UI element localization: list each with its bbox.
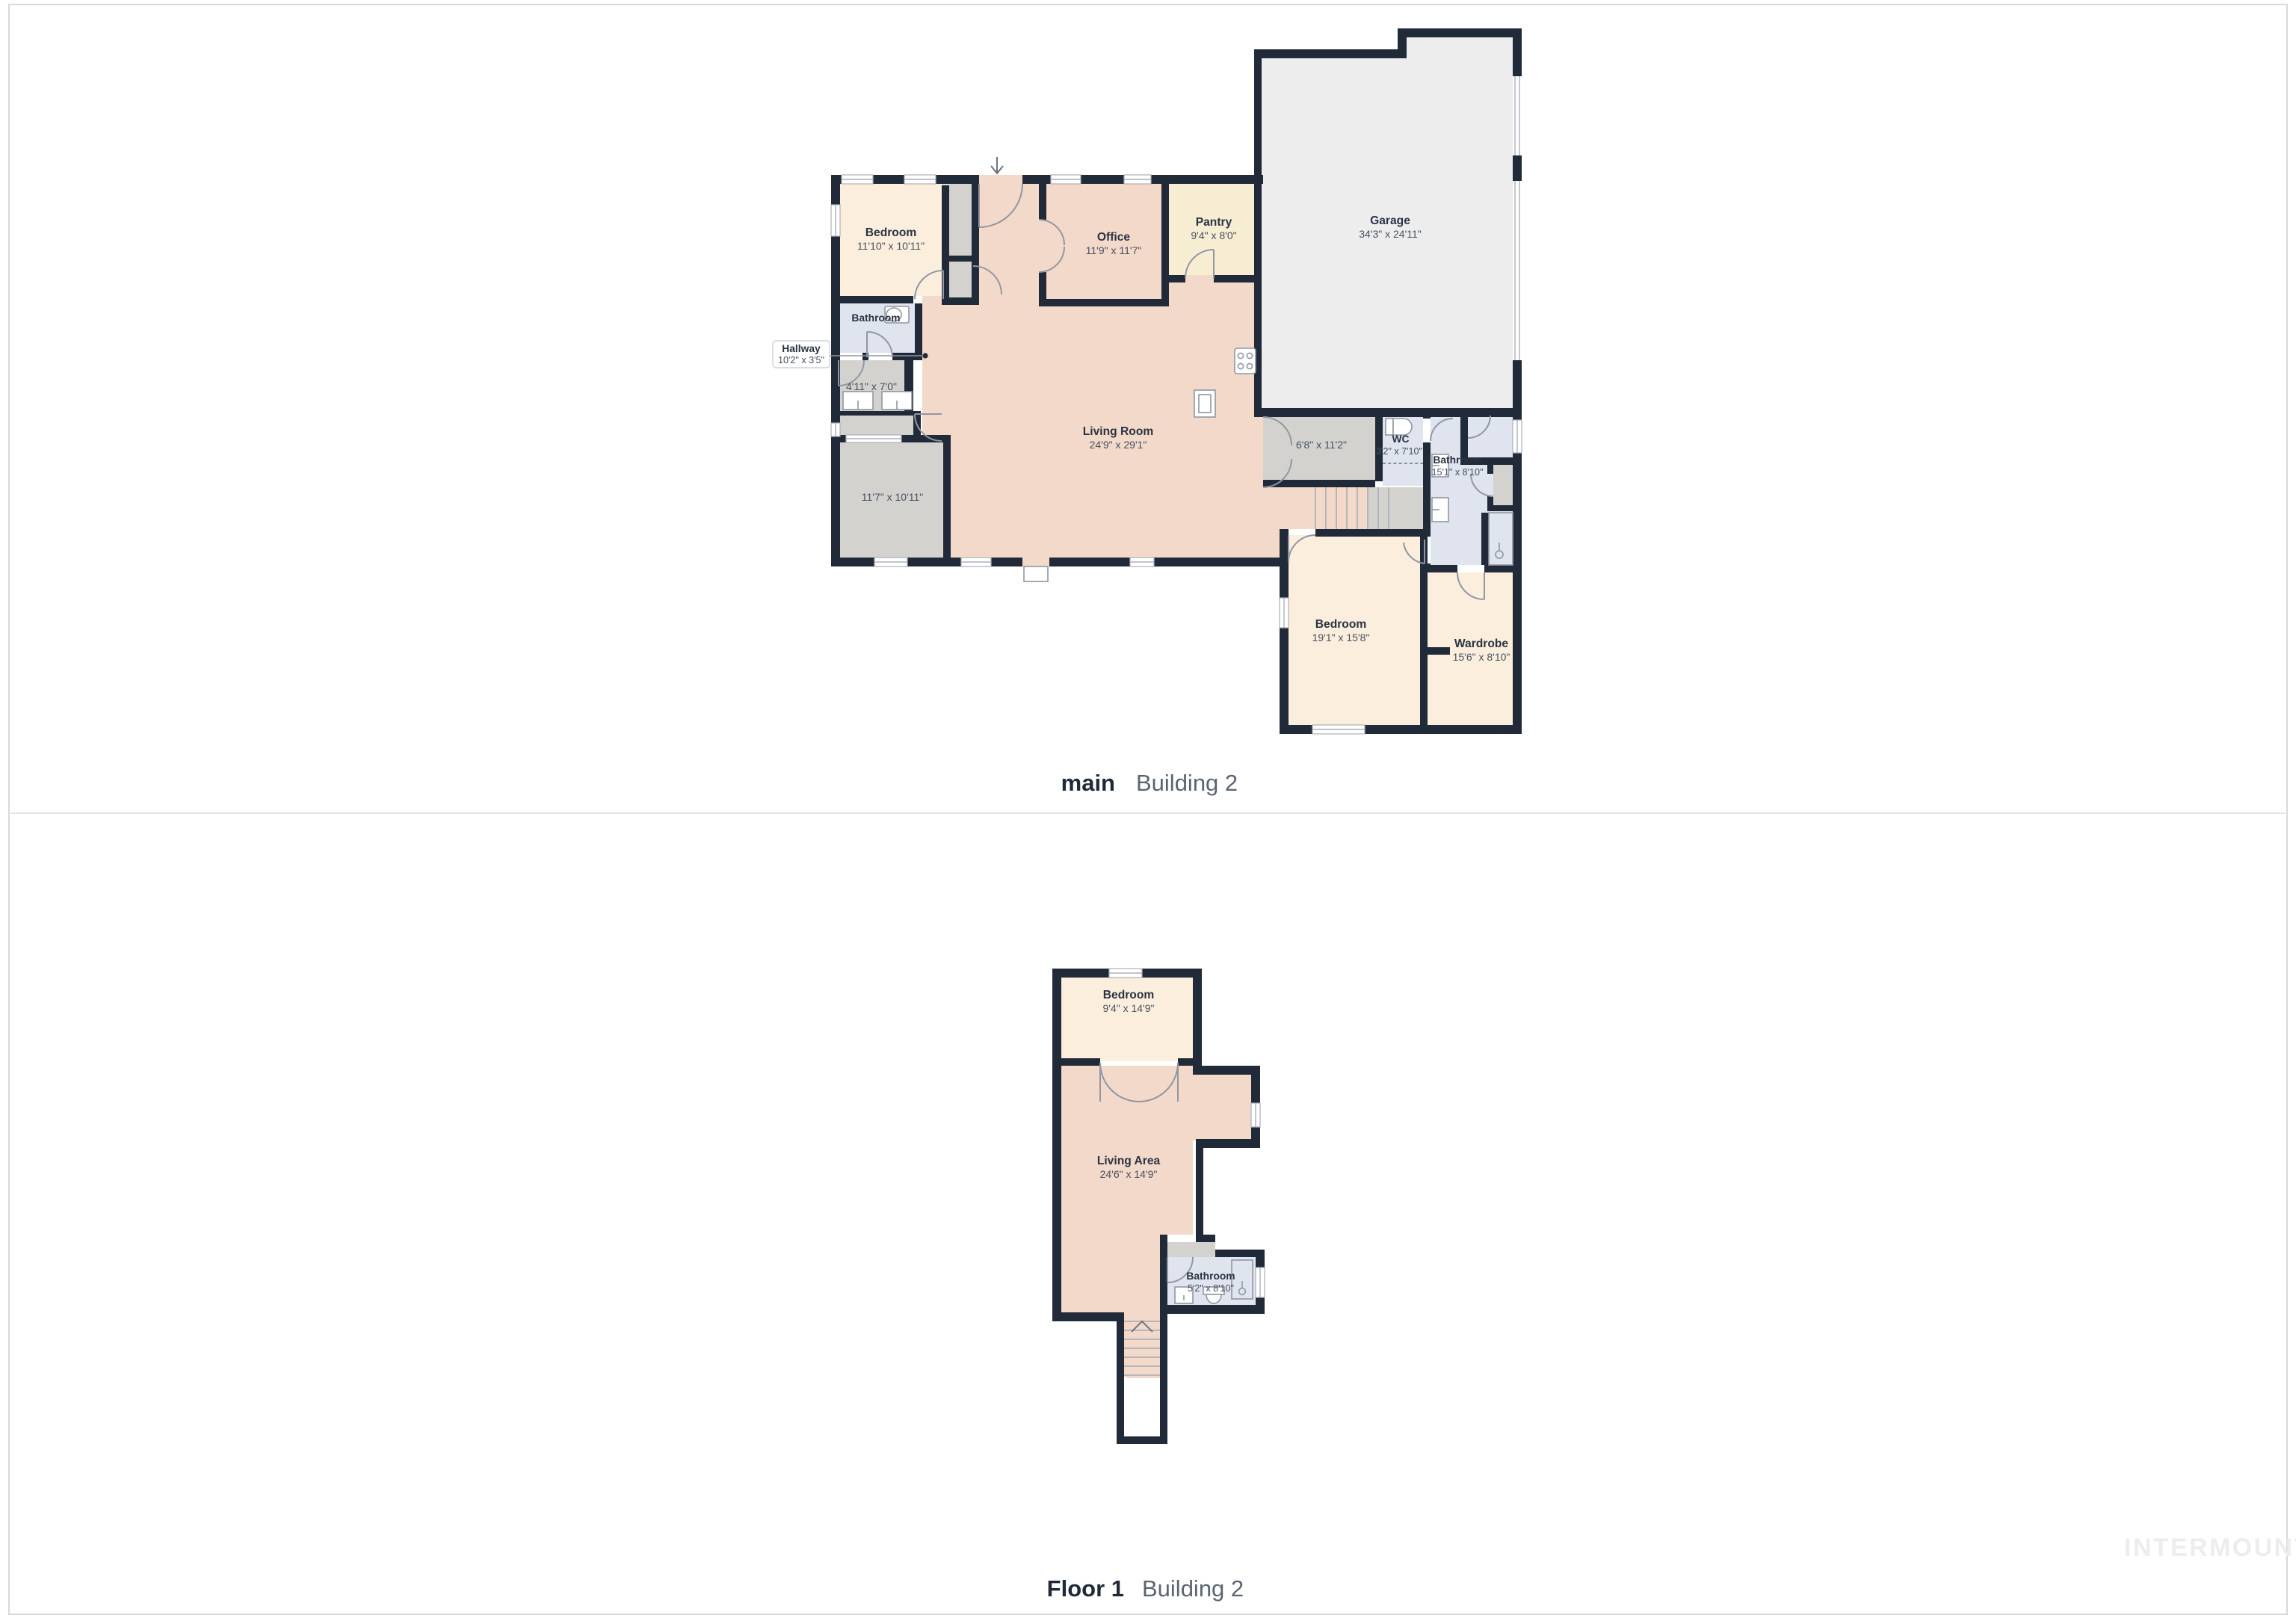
room-dims: 4'11" x 7'0" [846, 380, 897, 392]
room-dims: 11'10" x 10'11" [857, 240, 925, 252]
room-dims: 3'2" x 7'10" [1376, 446, 1422, 457]
main-caption: main Building 2 [1061, 770, 1238, 796]
room-label: Bathroom [1186, 1271, 1235, 1282]
room-dims: 15'6" x 8'10" [1453, 651, 1510, 663]
room-label: Office [1097, 231, 1131, 244]
room-label: Garage [1370, 214, 1410, 227]
room-label: Living Room [1083, 425, 1153, 438]
room-label: Bathroom [1433, 454, 1481, 466]
room-dims: 19'1" x 15'8" [1312, 632, 1370, 643]
room-dims: 11'7" x 10'11" [862, 491, 924, 503]
stair-landing-floor [1368, 487, 1423, 529]
callout-dot [922, 353, 928, 358]
bath-closet-floor [1493, 465, 1513, 505]
building-name: Building 2 [1136, 770, 1238, 796]
room-dims: 5'2" x 8'10" [1188, 1283, 1234, 1294]
floor-name: main [1061, 770, 1115, 796]
floor1-caption: Floor 1 Building 2 [1047, 1575, 1244, 1602]
room-label: Hallway [782, 343, 821, 354]
floor-name: Floor 1 [1047, 1575, 1124, 1602]
closet-floor [949, 184, 972, 299]
living-lower-floor [1061, 1235, 1160, 1312]
room-dims: 6'8" x 11'2" [1296, 439, 1347, 451]
room-dims: 10'2" x 3'5" [778, 355, 824, 365]
vestibule-floor [1167, 1242, 1215, 1257]
garage-doors [1513, 76, 1522, 360]
watermark: INTERMOUNTAIN [2124, 1534, 2296, 1562]
room-label: WC [1392, 433, 1410, 445]
room-dims: 9'4" x 8'0" [1191, 229, 1236, 241]
room-label: Pantry [1196, 216, 1232, 229]
room-label: Wardrobe [1454, 637, 1509, 650]
wc-toilet-icon [1386, 419, 1412, 435]
shower-icon [1489, 513, 1513, 565]
room-label: Bedroom [1103, 989, 1154, 1001]
living-area-floor [1061, 1066, 1193, 1235]
stair-corridor-floor [1263, 487, 1375, 529]
room-label: Bedroom [865, 226, 916, 239]
floor-plan-page: Bedroom 11'10" x 10'11" Office 11'9" x 1… [0, 0, 2296, 1624]
exterior-door [1024, 566, 1048, 581]
room-dims: 9'4" x 14'9" [1103, 1002, 1155, 1014]
room-label: Bathroom [851, 312, 900, 324]
stove-icon [1235, 348, 1256, 374]
fireplace-icon [1194, 390, 1215, 417]
living-extension-floor [1193, 1075, 1253, 1140]
room-label: Bedroom [1315, 618, 1366, 631]
room-dims: 11'9" x 11'7" [1086, 244, 1142, 256]
building-name: Building 2 [1142, 1575, 1244, 1602]
room-label: Living Area [1097, 1155, 1161, 1167]
room-dims: 24'6" x 14'9" [1100, 1168, 1158, 1180]
room-dims: 15'1" x 8'10" [1431, 467, 1483, 478]
room-dims: 34'3" x 24'11" [1359, 228, 1422, 240]
room-dims: 24'9" x 29'1" [1090, 439, 1147, 451]
